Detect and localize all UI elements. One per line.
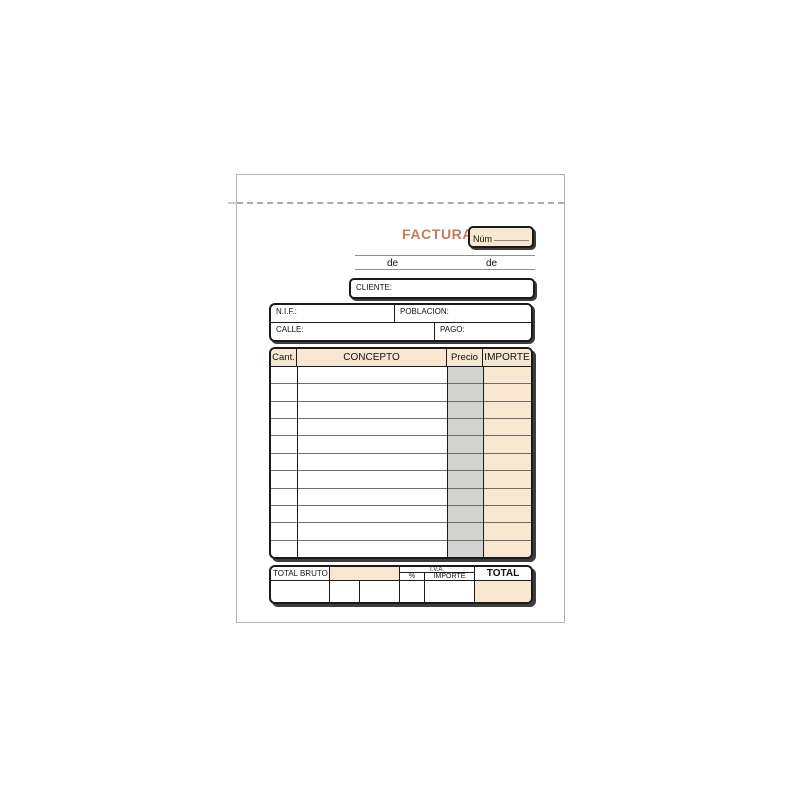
line-items-body: [271, 367, 531, 557]
invoice-sheet: FACTURA Núm de de CLIENTE: N.I.F.: POBLA…: [236, 174, 565, 623]
num-label: Núm: [473, 234, 492, 244]
perforation-tick: [228, 202, 237, 204]
address-row-1: N.I.F.: POBLACION:: [271, 305, 531, 323]
total-bruto-value-cell: [330, 567, 400, 580]
header-importe: IMPORTE: [483, 349, 531, 366]
totals-cell-3: [360, 581, 400, 602]
totals-header: TOTAL BRUTO I.V.A. % IMPORTE TOTAL: [271, 567, 531, 581]
totals-cell-total: [475, 581, 531, 602]
line-item-row: [271, 436, 531, 453]
line-item-rows: [271, 367, 531, 557]
line-item-row: [271, 471, 531, 488]
address-row-2: CALLE: PAGO:: [271, 323, 531, 341]
invoice-number-box: Núm: [468, 226, 534, 248]
line-item-row: [271, 419, 531, 436]
totals-box: TOTAL BRUTO I.V.A. % IMPORTE TOTAL: [269, 565, 533, 604]
header-concepto: CONCEPTO: [297, 349, 447, 366]
header-rule: [355, 255, 535, 256]
totals-value-row: [271, 581, 531, 602]
cliente-label: CLIENTE:: [356, 283, 392, 292]
header-cant: Cant.: [271, 349, 297, 366]
pago-field: PAGO:: [435, 323, 531, 341]
column-divider-importe: [483, 367, 484, 557]
line-item-row: [271, 402, 531, 419]
num-fill-line: [494, 240, 529, 241]
line-item-row: [271, 523, 531, 540]
line-items-header: Cant. CONCEPTO Precio IMPORTE: [271, 349, 531, 367]
form-title: FACTURA: [402, 226, 473, 242]
line-item-row: [271, 506, 531, 523]
line-item-row: [271, 367, 531, 384]
totals-cell-2: [330, 581, 360, 602]
iva-importe-label: IMPORTE: [425, 573, 474, 580]
total-label: TOTAL: [475, 567, 531, 580]
poblacion-field: POBLACION:: [395, 305, 531, 322]
line-items-table: Cant. CONCEPTO Precio IMPORTE: [269, 347, 533, 559]
cliente-field: CLIENTE:: [349, 278, 535, 299]
totals-cell-iva-percent: [400, 581, 425, 602]
perforation-dashed-line: [237, 202, 564, 204]
calle-field: CALLE:: [271, 323, 435, 341]
line-item-row: [271, 384, 531, 401]
nif-field: N.I.F.:: [271, 305, 395, 322]
date-word-de-1: de: [387, 258, 398, 269]
date-fill-line: [355, 269, 535, 270]
iva-percent-label: %: [400, 573, 425, 580]
total-bruto-label: TOTAL BRUTO: [271, 567, 330, 580]
totals-cell-iva-importe: [425, 581, 475, 602]
totals-cell-bruto: [271, 581, 330, 602]
product-photo-background: FACTURA Núm de de CLIENTE: N.I.F.: POBLA…: [0, 0, 800, 800]
iva-header-group: I.V.A. % IMPORTE: [400, 567, 475, 580]
line-item-row: [271, 489, 531, 506]
iva-subheaders: % IMPORTE: [400, 573, 474, 580]
line-item-row: [271, 454, 531, 471]
header-precio: Precio: [447, 349, 483, 366]
date-word-de-2: de: [486, 258, 497, 269]
address-fields-box: N.I.F.: POBLACION: CALLE: PAGO:: [269, 303, 533, 342]
column-divider-cant: [297, 367, 298, 557]
column-divider-precio: [447, 367, 448, 557]
line-item-row: [271, 541, 531, 557]
